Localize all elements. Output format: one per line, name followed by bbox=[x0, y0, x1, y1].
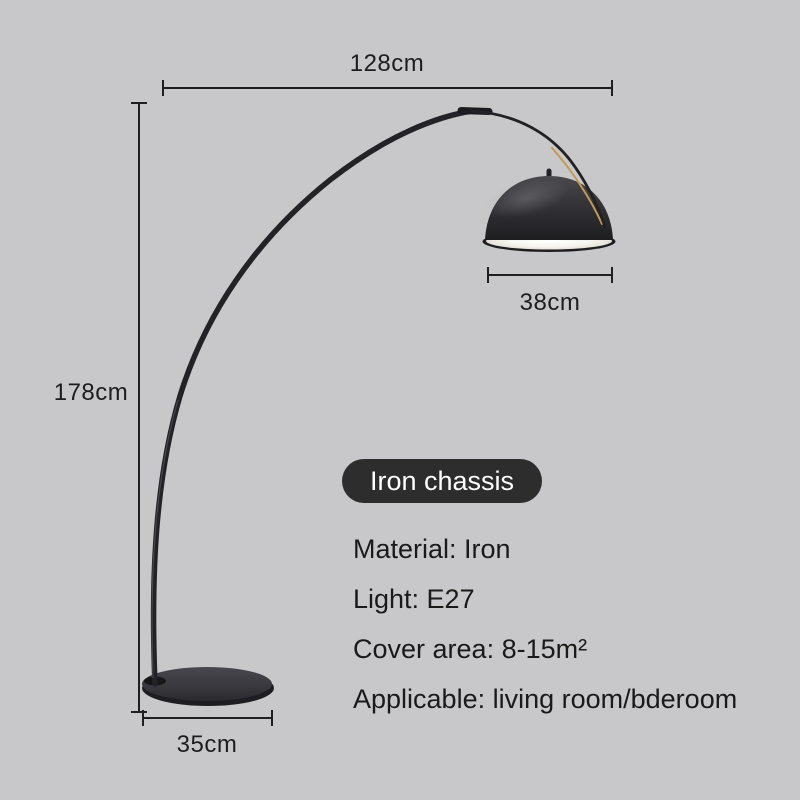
spec-material: Material: Iron bbox=[353, 534, 737, 564]
iron-chassis-badge: Iron chassis bbox=[342, 459, 542, 503]
dimension-label-height: 178cm bbox=[54, 379, 129, 407]
spec-applicable: Applicable: living room/bderoom bbox=[353, 684, 737, 714]
spec-list: Material: Iron Light: E27 Cover area: 8-… bbox=[353, 534, 737, 734]
lamp-shade-nub bbox=[547, 169, 552, 177]
dimension-line-top bbox=[163, 80, 612, 96]
dimension-line-shade bbox=[488, 267, 612, 283]
product-image: 128cm 178cm 38cm 35cm Iron chassis Mater… bbox=[0, 0, 800, 800]
spec-light: Light: E27 bbox=[353, 584, 737, 614]
dimension-label-arc-width: 128cm bbox=[350, 50, 425, 78]
dimension-label-shade-width: 38cm bbox=[520, 289, 581, 317]
dimension-line-left bbox=[131, 103, 147, 712]
spec-cover-area: Cover area: 8-15m² bbox=[353, 634, 737, 664]
dimension-line-base bbox=[143, 710, 272, 726]
dimension-label-base-width: 35cm bbox=[177, 731, 238, 759]
